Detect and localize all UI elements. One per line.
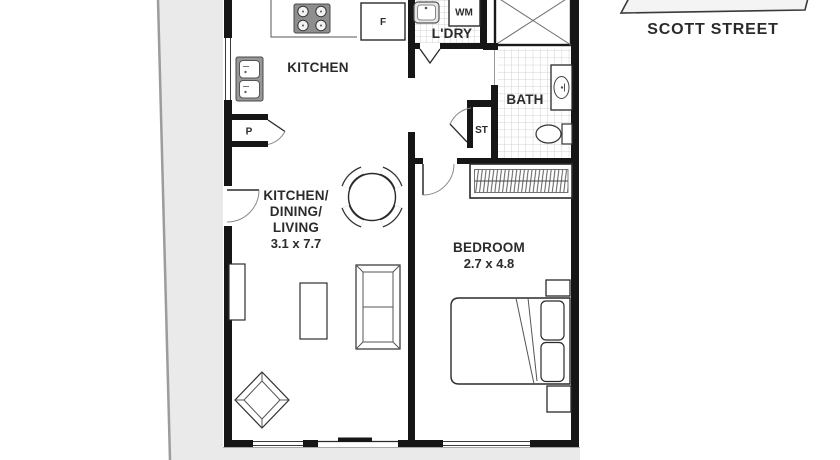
pantry-door [268, 120, 285, 145]
dining-table [349, 174, 396, 221]
wall-laundry-2 [440, 43, 487, 49]
wall-bottom-3 [398, 440, 443, 447]
tv-unit [229, 264, 245, 320]
window-living [253, 440, 303, 447]
bedroom-furniture [451, 280, 571, 412]
pillow [541, 301, 564, 340]
entry-door [227, 190, 259, 222]
wall-store-side [467, 107, 473, 148]
wall-pantry-bottom [232, 141, 268, 147]
bedside-table [547, 386, 571, 412]
street-name-label: SCOTT STREET [647, 21, 778, 38]
sofa [356, 265, 400, 349]
wall-bedroom-top-2 [457, 158, 572, 164]
sliding-door [318, 438, 398, 443]
wall-bottom-2 [303, 440, 318, 447]
coffee-table [300, 283, 327, 339]
wall-laundry-bath [480, 0, 487, 49]
laundry-bifold-door [420, 49, 440, 63]
store-label: ST [475, 125, 488, 136]
wall-left-mid [224, 100, 232, 186]
vanity-icon [551, 65, 572, 110]
bath-label: BATH [506, 92, 543, 107]
wall-divider-bottom [408, 132, 415, 440]
living-label-line3: LIVING [273, 220, 319, 235]
wall-bedroom-top-1 [415, 158, 423, 164]
cooktop-icon [294, 4, 330, 33]
window-bedroom [443, 440, 530, 447]
living-label-line2: DINING/ [270, 204, 322, 219]
bedroom-door [423, 164, 454, 195]
kitchen-sink-icon [236, 57, 263, 101]
washing-machine-box: WM [449, 0, 480, 26]
bedroom-dimensions: 2.7 x 4.8 [464, 256, 515, 271]
living-label-line1: KITCHEN/ [263, 188, 328, 203]
window-left [224, 38, 232, 100]
pillow [541, 343, 564, 382]
toilet-icon [536, 124, 572, 144]
bedside-table [546, 280, 570, 296]
kitchen-fixtures: F [236, 0, 405, 101]
living-dimensions: 3.1 x 7.7 [271, 236, 322, 251]
shower-box [495, 0, 571, 45]
wall-bottom-4 [530, 440, 579, 447]
kitchen-label: KITCHEN [287, 60, 348, 75]
wall-pantry-top [232, 114, 268, 120]
washing-machine-label: WM [455, 8, 473, 19]
bedroom-label: BEDROOM [453, 240, 525, 255]
fridge-box: F [361, 3, 405, 40]
street-shape [621, 0, 808, 13]
dining-set [344, 169, 400, 225]
rug [235, 372, 289, 428]
floorplan-drawing: F WM [0, 0, 840, 460]
laundry-label: L'DRY [432, 26, 472, 41]
wall-bottom-1 [224, 440, 253, 447]
wardrobe-icon [470, 164, 572, 198]
wall-left-bottom [224, 226, 232, 447]
laundry-tub-icon [414, 2, 439, 23]
fridge-label: F [380, 17, 386, 28]
floorplan-page: F WM [0, 0, 840, 460]
side-outside-area [157, 0, 223, 460]
street-strip [223, 447, 580, 460]
wall-bath-stub [483, 43, 498, 50]
pantry-label: P [246, 127, 253, 138]
wall-bath-left [491, 85, 498, 158]
street-sign: SCOTT STREET [621, 0, 808, 38]
wall-laundry-1 [408, 43, 420, 49]
wall-left-top [224, 0, 232, 38]
wall-store-top [467, 100, 498, 107]
